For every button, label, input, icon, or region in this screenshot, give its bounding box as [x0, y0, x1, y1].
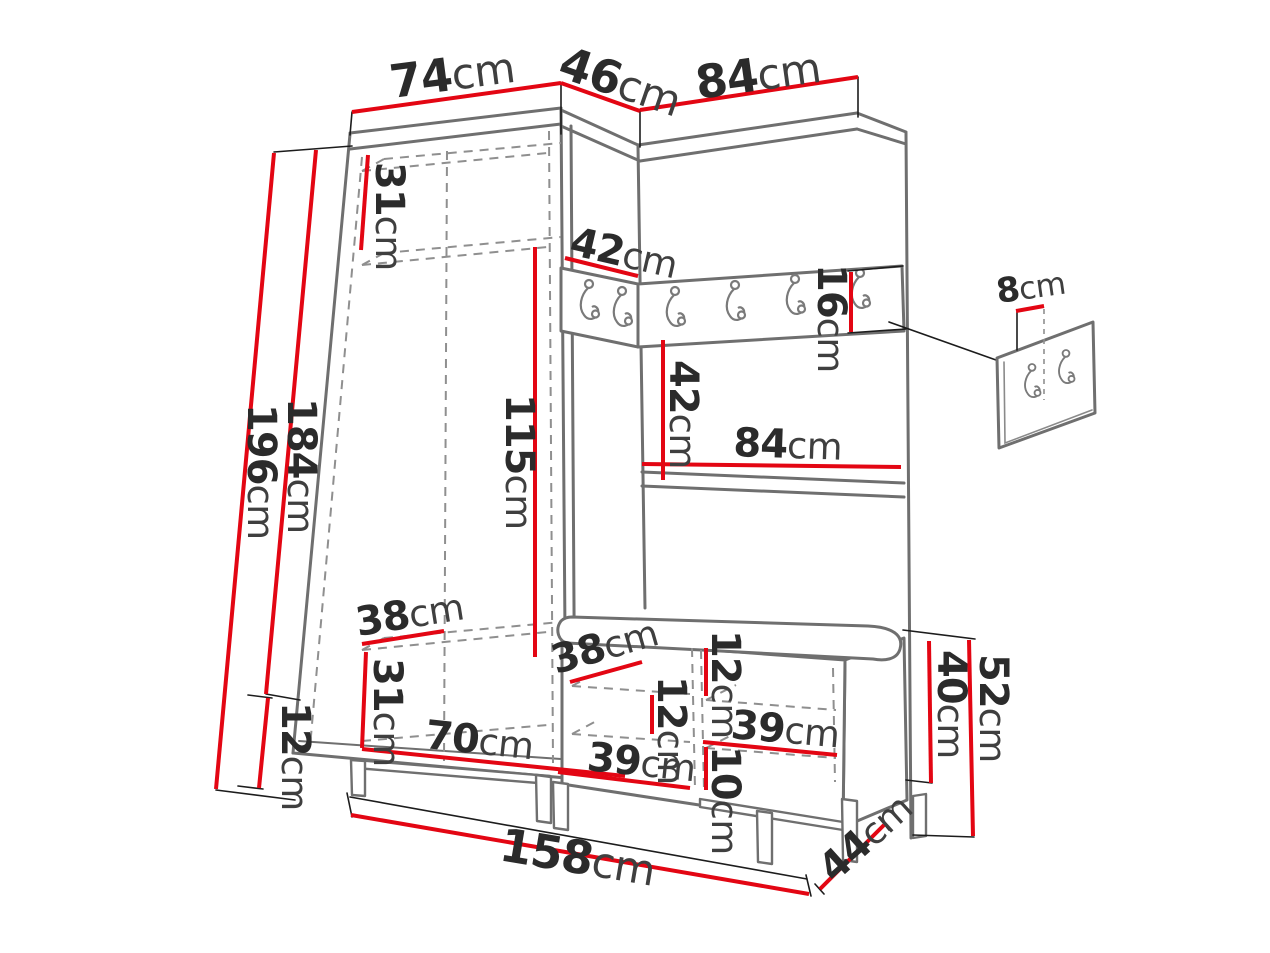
diagram-page: 74cm 46cm 84cm 196cm 184cm 31cm 42cm 16c…: [0, 0, 1270, 953]
label-corner-top-width: 46cm: [552, 35, 688, 127]
label-bench-body-height: 40cm: [928, 650, 974, 759]
label-hook-rail-height: 16cm: [808, 264, 854, 373]
label-panel-top-width: 84cm: [692, 39, 824, 110]
hook-panel-detail: [997, 309, 1095, 448]
label-plinth-height: 12cm: [272, 702, 318, 811]
label-panel-shelf-width: 84cm: [733, 420, 843, 470]
label-total-height: 196cm: [238, 404, 284, 540]
label-bottom-shelf-height: 31cm: [364, 658, 410, 767]
panel-shelf: [642, 472, 904, 497]
label-cabinet-height: 184cm: [278, 398, 324, 534]
label-wardrobe-shelf-depth: 38cm: [352, 583, 467, 645]
leader-line: [889, 322, 996, 360]
label-panel-gap-height: 42cm: [660, 360, 706, 469]
label-top-shelf-height: 31cm: [366, 162, 412, 271]
label-bench-total-height: 52cm: [970, 654, 1016, 763]
label-bench-lower-clearance: 10cm: [702, 746, 748, 855]
diagram-canvas: 74cm 46cm 84cm 196cm 184cm 31cm 42cm 16c…: [0, 0, 1270, 953]
label-hook-panel-offset: 8cm: [994, 263, 1068, 312]
label-total-width: 158cm: [496, 818, 659, 897]
label-hanging-space-height: 115cm: [496, 394, 542, 530]
label-wardrobe-top-width: 74cm: [386, 39, 517, 109]
label-wardrobe-inner-width: 70cm: [423, 712, 536, 769]
